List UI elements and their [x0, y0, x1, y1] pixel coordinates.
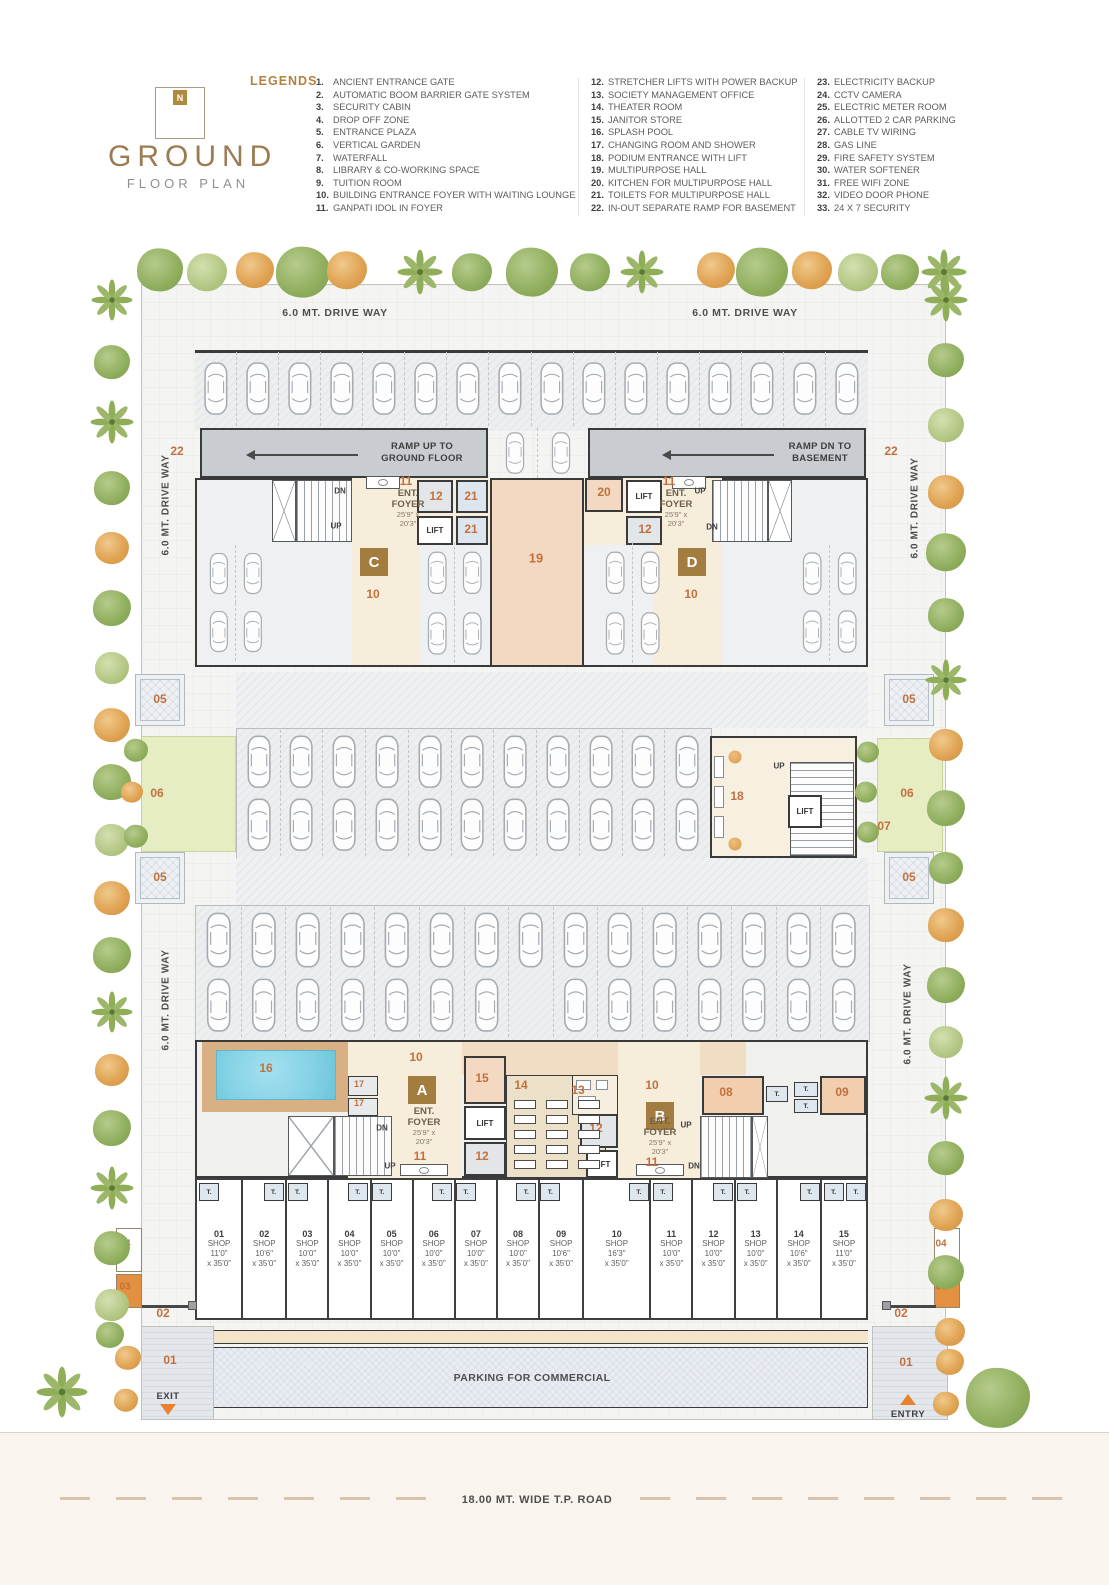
- plant-icon: [729, 838, 742, 851]
- road-dash: [920, 1497, 950, 1500]
- parking-stall: [643, 973, 688, 1037]
- parking-stall: [321, 352, 363, 426]
- parking-stall: [375, 973, 420, 1037]
- tree-icon: [929, 729, 963, 761]
- parking-stall: [363, 352, 405, 426]
- parking-stall: [599, 603, 633, 663]
- tree-icon: [94, 708, 130, 742]
- parking-stall: [580, 730, 623, 793]
- palm-tree-icon: [91, 991, 133, 1033]
- parking-stall: [492, 428, 538, 478]
- car-icon: [664, 356, 692, 421]
- parking-stall: [688, 907, 733, 973]
- car-icon: [833, 356, 861, 421]
- plant-icon: [729, 751, 742, 764]
- room-marker-14: 14: [514, 1078, 527, 1092]
- room-marker-07: 07: [877, 819, 890, 833]
- room-marker-05: 05: [902, 692, 915, 706]
- foyer-label: ENT.FOYER25'9" x20'3": [644, 1116, 677, 1156]
- car-icon: [330, 734, 358, 789]
- seat: [546, 1130, 568, 1139]
- toilet-box: T.: [737, 1183, 757, 1201]
- parking-stall: [826, 352, 868, 426]
- tree-icon: [95, 532, 129, 564]
- parking-stall: [494, 793, 537, 856]
- tree-icon: [94, 881, 130, 915]
- road-dash: [284, 1497, 314, 1500]
- palm-tree-icon: [90, 1166, 134, 1210]
- car-icon: [496, 356, 524, 421]
- foyer-label: ENT.FOYER25'9" x20'3": [408, 1106, 441, 1146]
- parking-stall: [784, 352, 826, 426]
- parking-stall: [554, 973, 599, 1037]
- room-marker-08: 08: [719, 1085, 732, 1099]
- exit-lane: [141, 1326, 214, 1420]
- car-icon: [338, 911, 367, 969]
- parking-stall: [405, 352, 447, 426]
- palm-tree-icon: [36, 1366, 88, 1418]
- tree-icon: [124, 739, 148, 762]
- block-badge-c: C: [360, 548, 388, 576]
- driveway-label-vertical: 6.0 MT. DRIVE WAY: [910, 458, 921, 559]
- parking-stall: [633, 542, 667, 603]
- desk: [596, 1080, 608, 1090]
- parking-stall: [574, 352, 616, 426]
- entry-arrow-icon: [900, 1394, 916, 1405]
- seat: [578, 1130, 600, 1139]
- car-icon: [461, 546, 483, 600]
- room-marker-05: 05: [902, 870, 915, 884]
- driveway-label-vertical: 6.0 MT. DRIVE WAY: [903, 964, 914, 1065]
- toilet-box: T.: [540, 1183, 560, 1201]
- car-icon: [242, 606, 264, 657]
- parking-stall: [421, 542, 455, 603]
- car-icon: [501, 734, 529, 789]
- tree-icon: [570, 253, 610, 291]
- car-icon: [739, 977, 768, 1033]
- car-icon: [650, 911, 679, 969]
- ramp-label: RAMP DN TO: [780, 441, 860, 453]
- tree-icon: [94, 1231, 130, 1265]
- parking-stall: [658, 352, 700, 426]
- seat: [514, 1100, 536, 1109]
- parking-stall: [323, 730, 366, 793]
- car-icon: [629, 797, 657, 852]
- toilet-box: T.: [824, 1183, 844, 1201]
- entry-label: ENTRY: [891, 1409, 925, 1420]
- tree-icon: [928, 1141, 964, 1175]
- road-dash: [640, 1497, 670, 1500]
- parking-stall: [688, 973, 733, 1037]
- car-icon: [461, 607, 483, 660]
- tree-icon: [95, 1054, 129, 1086]
- car-icon: [604, 546, 626, 600]
- parking-stall: [203, 603, 236, 661]
- car-icon: [622, 356, 650, 421]
- parking-stall: [796, 603, 830, 661]
- seat: [578, 1115, 600, 1124]
- tree-icon: [736, 248, 788, 297]
- tree-icon: [792, 251, 832, 289]
- room-marker-12: 12: [638, 522, 651, 536]
- tree-icon: [926, 533, 966, 571]
- car-icon: [784, 977, 813, 1033]
- room-marker-11: 11: [414, 1149, 427, 1163]
- tree-icon: [929, 1026, 963, 1058]
- toilet-box: T.: [794, 1099, 818, 1113]
- parking-stall: [509, 907, 554, 973]
- tree-icon: [95, 652, 129, 684]
- car-icon: [587, 797, 615, 852]
- car-icon: [202, 356, 230, 421]
- parking-stall: [537, 793, 580, 856]
- parking-stall: [777, 973, 822, 1037]
- parking-stall: [623, 730, 666, 793]
- seat: [578, 1145, 600, 1154]
- car-icon: [748, 356, 776, 421]
- tree-icon: [697, 252, 735, 288]
- site-plan: 6.0 MT. DRIVE WAY 6.0 MT. DRIVE WAY 6.0 …: [0, 0, 1109, 1585]
- car-icon: [673, 734, 701, 789]
- parking-stall: [821, 973, 866, 1037]
- car-icon: [695, 977, 724, 1033]
- car-icon: [605, 911, 634, 969]
- seat: [546, 1145, 568, 1154]
- parking-stall: [598, 907, 643, 973]
- parking-stall: [821, 907, 866, 973]
- tree-icon: [935, 1318, 965, 1346]
- car-icon: [427, 977, 456, 1033]
- tp-road: [0, 1432, 1109, 1585]
- toilet-box: T.: [288, 1183, 308, 1201]
- room-marker-22: 22: [170, 444, 183, 458]
- palm-tree-icon: [924, 278, 968, 322]
- parking-stall: [366, 793, 409, 856]
- car-icon: [242, 548, 264, 599]
- car-icon: [629, 734, 657, 789]
- car-icon: [287, 797, 315, 852]
- car-icon: [801, 606, 823, 657]
- tree-icon: [966, 1368, 1030, 1428]
- tree-icon: [93, 937, 131, 973]
- car-icon: [412, 356, 440, 421]
- road-dash: [808, 1497, 838, 1500]
- driveway-strip: [236, 672, 868, 728]
- parking-stall: [366, 730, 409, 793]
- seat: [578, 1160, 600, 1169]
- tree-icon: [927, 967, 965, 1003]
- tree-icon: [881, 254, 919, 290]
- car-icon: [472, 977, 501, 1033]
- boom-barrier-post: [188, 1301, 197, 1310]
- toilet-box: T.: [794, 1082, 818, 1097]
- room-marker-16: 16: [259, 1061, 272, 1075]
- driveway-label: 6.0 MT. DRIVE WAY: [692, 307, 798, 319]
- car-icon: [673, 797, 701, 852]
- car-icon: [416, 797, 444, 852]
- car-icon: [373, 797, 401, 852]
- toilet-box: T.: [264, 1183, 284, 1201]
- toilet-box: T.: [713, 1183, 733, 1201]
- toilet-box: T.: [846, 1183, 866, 1201]
- parking-stall: [236, 603, 269, 661]
- parking-stall: [195, 352, 237, 426]
- parking-stall: [532, 352, 574, 426]
- road-dash: [116, 1497, 146, 1500]
- tree-icon: [452, 253, 492, 291]
- block-badge-d: D: [678, 548, 706, 576]
- driveway-strip: [236, 858, 868, 905]
- tree-icon: [929, 1199, 963, 1231]
- car-icon: [695, 911, 724, 969]
- tree-icon: [928, 598, 964, 632]
- car-icon: [561, 911, 590, 969]
- dn-label: DN: [334, 487, 346, 496]
- car-icon: [416, 734, 444, 789]
- parking-stall: [197, 907, 242, 973]
- dn-label: DN: [706, 523, 718, 532]
- road-dash: [340, 1497, 370, 1500]
- tree-icon: [327, 251, 367, 289]
- parking-stall: [447, 352, 489, 426]
- car-icon: [293, 911, 322, 969]
- room-marker-20: 20: [597, 485, 610, 499]
- parking-stall: [665, 793, 708, 856]
- parking-stall: [242, 973, 287, 1037]
- parking-stall: [197, 973, 242, 1037]
- parking-stall: [421, 603, 455, 663]
- tree-icon: [121, 782, 143, 803]
- car-icon: [373, 734, 401, 789]
- car-icon: [561, 977, 590, 1033]
- parking-stall: [238, 793, 281, 856]
- car-icon: [426, 607, 448, 660]
- tree-icon: [838, 253, 878, 291]
- tree-icon: [928, 908, 964, 942]
- room-marker-04: 04: [935, 1239, 946, 1250]
- tree-icon: [94, 471, 130, 505]
- parking-stall: [537, 730, 580, 793]
- room-marker-21: 21: [464, 489, 477, 503]
- commercial-parking-label: PARKING FOR COMMERCIAL: [454, 1372, 611, 1384]
- lift-box: LIFT: [626, 480, 662, 513]
- parking-stall: [420, 973, 465, 1037]
- seat: [514, 1130, 536, 1139]
- car-icon: [639, 546, 661, 600]
- car-icon: [472, 911, 501, 969]
- room-marker-18: 18: [730, 789, 743, 803]
- parking-stall: [509, 973, 554, 1037]
- room-marker-22: 22: [884, 444, 897, 458]
- toilet-box: T.: [766, 1086, 788, 1102]
- parking-stall: [777, 907, 822, 973]
- car-icon: [458, 734, 486, 789]
- parking-stall: [281, 730, 324, 793]
- ramp-label: RAMP UP TO: [362, 441, 482, 453]
- lift-shaft: [272, 480, 296, 542]
- palm-tree-icon: [925, 659, 967, 701]
- up-label: UP: [694, 487, 705, 496]
- foyer-label: ENT.FOYER25'9" x20'3": [392, 488, 425, 528]
- parking-stall: [236, 545, 269, 603]
- car-icon: [245, 797, 273, 852]
- tree-icon: [94, 345, 130, 379]
- room-marker-15: 15: [475, 1071, 488, 1085]
- road-dash: [752, 1497, 782, 1500]
- car-icon: [784, 911, 813, 969]
- car-icon: [829, 911, 858, 969]
- car-icon: [204, 911, 233, 969]
- car-icon: [829, 977, 858, 1033]
- palm-tree-icon: [91, 279, 133, 321]
- car-icon: [801, 548, 823, 599]
- road-label: 18.00 MT. WIDE T.P. ROAD: [462, 1494, 613, 1506]
- parking-stall: [494, 730, 537, 793]
- parking-stall: [331, 907, 376, 973]
- tree-icon: [506, 248, 558, 297]
- bench: [714, 756, 724, 778]
- parking-stall: [455, 603, 489, 663]
- lift-box: LIFT: [788, 795, 822, 828]
- parking-stall: [455, 542, 489, 603]
- road-dash: [172, 1497, 202, 1500]
- ganpati-idol-a: [400, 1164, 448, 1176]
- toilet-box: T.: [432, 1183, 452, 1201]
- toilet-box: T.: [456, 1183, 476, 1201]
- car-icon: [516, 911, 545, 969]
- parking-stall: [580, 793, 623, 856]
- room-marker-01: 01: [899, 1355, 912, 1369]
- parking-stall: [465, 973, 510, 1037]
- car-icon: [538, 356, 566, 421]
- car-icon: [544, 734, 572, 789]
- tree-icon: [124, 825, 148, 848]
- up-label: UP: [330, 522, 341, 531]
- parking-stall: [830, 603, 864, 661]
- exit-arrow-icon: [160, 1404, 176, 1415]
- lift-shaft: [768, 480, 792, 542]
- car-icon: [544, 797, 572, 852]
- up-label: UP: [680, 1121, 691, 1130]
- seat: [514, 1160, 536, 1169]
- room-marker-12: 12: [475, 1149, 488, 1163]
- parking-stall: [465, 907, 510, 973]
- room-marker-21: 21: [464, 522, 477, 536]
- parking-stall: [279, 352, 321, 426]
- dn-label: DN: [376, 1124, 388, 1133]
- parking-stall: [830, 545, 864, 603]
- parking-stall: [616, 352, 658, 426]
- parking-stall: [732, 907, 777, 973]
- parking-stall: [665, 730, 708, 793]
- room-marker-11: 11: [400, 474, 413, 488]
- car-icon: [427, 911, 456, 969]
- tree-icon: [928, 343, 964, 377]
- road-dash: [1032, 1497, 1062, 1500]
- car-icon: [338, 977, 367, 1033]
- car-icon: [382, 911, 411, 969]
- car-icon: [706, 356, 734, 421]
- ramp-label: GROUND FLOOR: [362, 453, 482, 465]
- tree-icon: [276, 247, 330, 298]
- tree-icon: [933, 1392, 959, 1416]
- commercial-strip: [195, 1330, 868, 1344]
- parking-stall: [623, 793, 666, 856]
- parking-stall: [643, 907, 688, 973]
- lift-shaft: [752, 1116, 768, 1178]
- bench: [714, 786, 724, 808]
- road-dash: [696, 1497, 726, 1500]
- parking-stall: [286, 973, 331, 1037]
- parking-stall: [237, 352, 279, 426]
- room-marker-01: 01: [163, 1353, 176, 1367]
- multipurpose-hall: [490, 478, 584, 667]
- car-icon: [836, 606, 858, 657]
- seat: [546, 1100, 568, 1109]
- toilet-box: T.: [199, 1183, 219, 1201]
- car-icon: [204, 977, 233, 1033]
- room-marker-05: 05: [153, 692, 166, 706]
- parking-stall: [409, 730, 452, 793]
- ramp-down: RAMP DN TO BASEMENT: [588, 428, 866, 478]
- tree-icon: [928, 408, 964, 442]
- tree-icon: [236, 252, 274, 288]
- room-marker-05: 05: [153, 870, 166, 884]
- car-icon: [208, 548, 230, 599]
- driveway-label-vertical: 6.0 MT. DRIVE WAY: [161, 455, 172, 556]
- parking-stall: [375, 907, 420, 973]
- staircase-d: [712, 480, 768, 542]
- floor-plan-page: N GROUND FLOOR PLAN LEGENDS 1.ANCIENT EN…: [0, 0, 1109, 1585]
- car-icon: [249, 977, 278, 1033]
- palm-tree-icon: [620, 250, 664, 294]
- toilet-box: T.: [516, 1183, 536, 1201]
- tree-icon: [927, 790, 965, 826]
- room-marker-10: 10: [366, 587, 379, 601]
- bench: [714, 816, 724, 838]
- room-marker-12: 12: [429, 489, 442, 503]
- car-icon: [604, 607, 626, 660]
- room-marker-11: 11: [663, 474, 676, 488]
- tree-icon: [93, 1110, 131, 1146]
- parking-stall: [633, 603, 667, 663]
- car-icon: [580, 356, 608, 421]
- seat: [546, 1115, 568, 1124]
- car-icon: [330, 797, 358, 852]
- ramp-label: BASEMENT: [780, 453, 860, 465]
- car-icon: [791, 356, 819, 421]
- parking-stall: [323, 793, 366, 856]
- up-label: UP: [384, 1162, 395, 1171]
- seat: [546, 1160, 568, 1169]
- room-marker-10: 10: [645, 1078, 658, 1092]
- driveway-label: 6.0 MT. DRIVE WAY: [282, 307, 388, 319]
- tree-icon: [115, 1346, 141, 1370]
- room-marker-10: 10: [684, 587, 697, 601]
- tree-icon: [855, 782, 877, 803]
- room-marker-06: 06: [150, 786, 163, 800]
- tree-icon: [187, 253, 227, 291]
- car-icon: [458, 797, 486, 852]
- parking-stall: [242, 907, 287, 973]
- toilet-box: T.: [629, 1183, 649, 1201]
- car-icon: [286, 356, 314, 421]
- commercial-parking: PARKING FOR COMMERCIAL: [195, 1347, 868, 1408]
- lift-shaft: [288, 1116, 334, 1176]
- parking-stall: [281, 793, 324, 856]
- car-icon: [244, 356, 272, 421]
- parking-stall: [732, 973, 777, 1037]
